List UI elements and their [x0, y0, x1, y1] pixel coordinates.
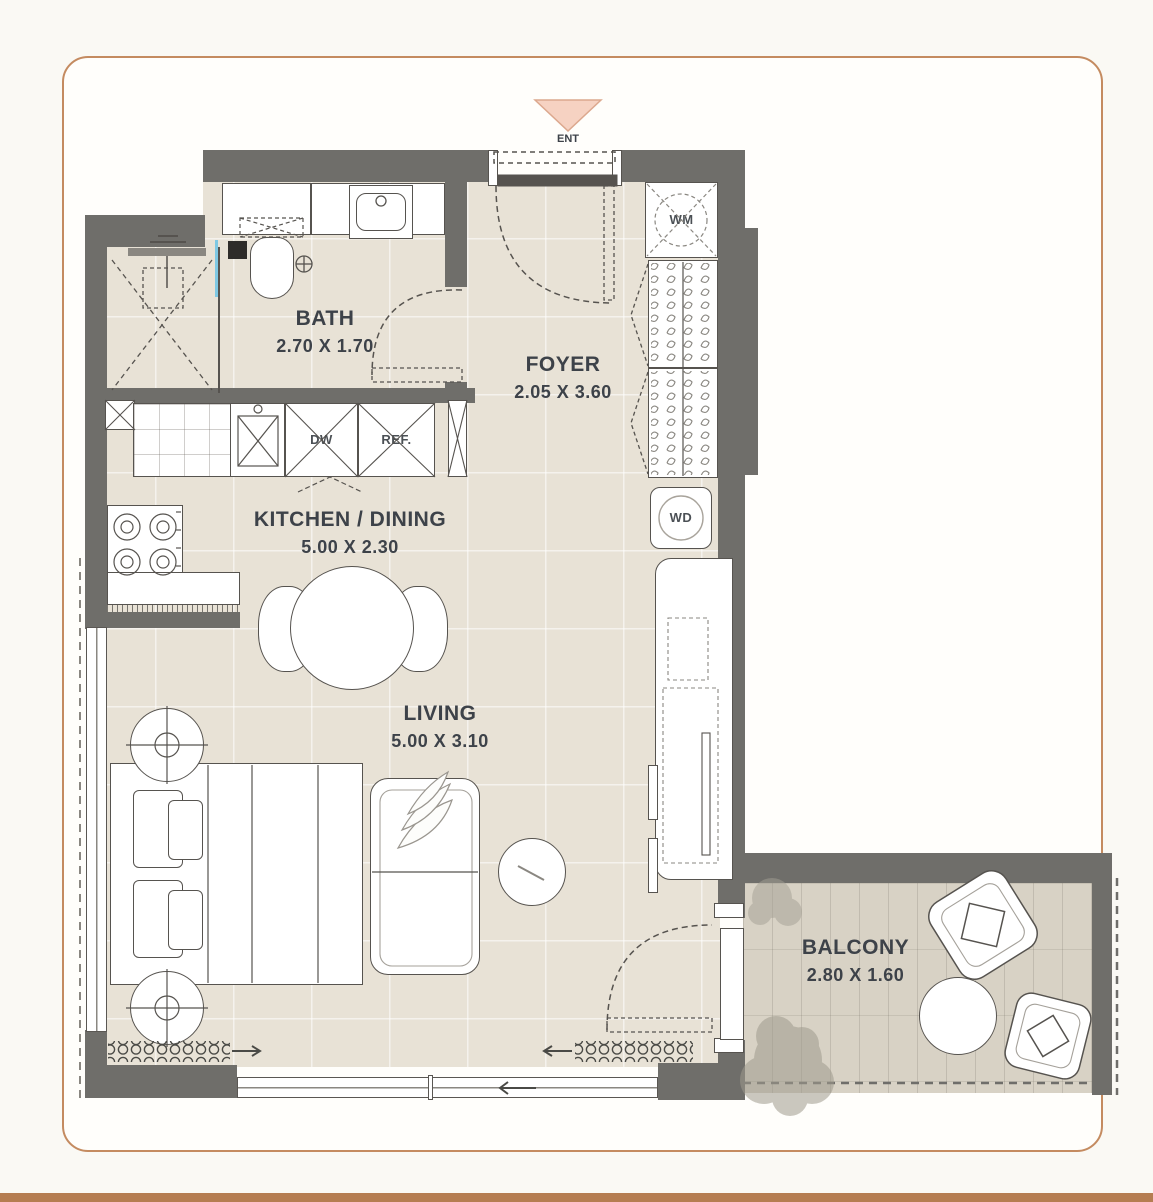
room-name: LIVING: [345, 701, 535, 727]
room-label-living: LIVING 5.00 X 3.10: [345, 701, 535, 753]
media-unit-knob: [648, 838, 658, 893]
ref-text: REF.: [378, 432, 414, 447]
toilet-bowl: [250, 237, 294, 299]
room-label-balcony: BALCONY 2.80 X 1.60: [758, 935, 953, 987]
dishwasher-label: DW: [285, 432, 358, 447]
wall-segment: [85, 247, 107, 629]
kitchen-sink-unit: [230, 403, 285, 477]
washing-machine-label: WM: [645, 212, 718, 227]
nightstand-lamp: [130, 708, 204, 782]
media-unit-knob: [648, 765, 658, 820]
exterior-patch: [107, 180, 203, 215]
room-dims: 2.70 X 1.70: [230, 335, 420, 358]
room-label-foyer: FOYER 2.05 X 3.60: [468, 352, 658, 404]
room-dims: 2.05 X 3.60: [468, 381, 658, 404]
bed-pillow-small: [168, 890, 203, 950]
wd-text: WD: [667, 510, 696, 525]
wall-segment: [85, 215, 205, 247]
entrance-label: ENT: [535, 133, 601, 145]
bath-sink-basin: [356, 193, 406, 231]
vanity-divider: [310, 183, 312, 235]
washer-dryer-label: WD: [650, 510, 712, 525]
shower-divider: [218, 247, 220, 393]
room-name: BATH: [230, 306, 420, 332]
balcony-door-panel: [720, 928, 744, 1040]
dw-text: DW: [307, 432, 336, 447]
wall-segment: [203, 150, 492, 182]
room-dims: 5.00 X 3.10: [345, 730, 535, 753]
entry-door-jamb: [488, 150, 498, 186]
room-dims: 2.80 X 1.60: [758, 964, 953, 987]
sofa: [370, 778, 480, 975]
bottom-window: [237, 1077, 658, 1098]
wall-segment: [745, 228, 758, 475]
bottom-window-mullion: [428, 1075, 433, 1100]
kitchen-lower-counter: [107, 572, 240, 605]
nightstand-lamp: [130, 971, 204, 1045]
kitchen-counter: [133, 403, 231, 477]
bath-door-wall: [445, 182, 467, 287]
room-name: FOYER: [468, 352, 658, 378]
balcony-top-wall: [718, 853, 1112, 883]
room-dims: 5.00 X 2.30: [180, 536, 520, 559]
pouf-table: [498, 838, 566, 906]
room-name: KITCHEN / DINING: [180, 507, 520, 533]
room-name: BALCONY: [758, 935, 953, 961]
balcony-door-jamb: [714, 1038, 744, 1053]
entry-door-jamb: [612, 150, 622, 186]
balcony-door-jamb: [714, 903, 744, 918]
bath-partition-wall: [85, 388, 475, 403]
balcony-table: [919, 977, 997, 1055]
kitchen-column: [105, 400, 135, 430]
wardrobe-lower: [648, 368, 718, 478]
refrigerator-label: REF.: [358, 432, 435, 447]
room-label-kitchen: KITCHEN / DINING 5.00 X 2.30: [180, 507, 520, 559]
wm-text: WM: [666, 212, 696, 227]
kitchen-half-wall: [105, 612, 240, 628]
left-window: [86, 627, 107, 1032]
media-unit: [655, 558, 733, 880]
wardrobe-upper: [648, 260, 718, 368]
wall-segment: [658, 1063, 745, 1100]
balcony-right-pillar: [1092, 878, 1112, 1095]
bath-accessory: [228, 241, 247, 259]
bed-pillow-small: [168, 800, 203, 860]
wall-segment: [617, 150, 745, 182]
wall-segment: [85, 1065, 237, 1098]
floorplan-page: BATH 2.70 X 1.70 FOYER 2.05 X 3.60 KITCH…: [0, 0, 1153, 1202]
footer-bar: [0, 1193, 1153, 1202]
counter-hatch: [107, 605, 240, 612]
balcony-floor: [743, 883, 1092, 1093]
room-label-bath: BATH 2.70 X 1.70: [230, 306, 420, 358]
kitchen-column-tall: [448, 400, 467, 477]
ent-text: ENT: [557, 133, 579, 145]
dining-table: [290, 566, 414, 690]
